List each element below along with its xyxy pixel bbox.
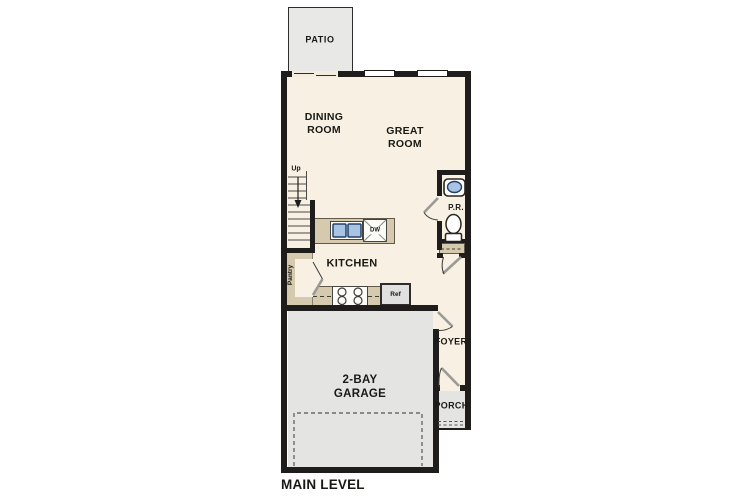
window	[417, 70, 448, 77]
dining-room-label: DINING ROOM	[305, 111, 344, 137]
wall	[437, 221, 442, 250]
refrigerator-label: Ref	[390, 291, 400, 299]
pantry-label: Pantry	[287, 265, 295, 285]
floor-plan: PATIO DINING ROOM GREAT ROOM KITCHEN Up …	[0, 0, 750, 500]
porch-label: PORCH	[434, 401, 468, 412]
wall	[437, 239, 466, 243]
garage-label: 2-BAY GARAGE	[334, 373, 386, 401]
wall	[437, 253, 443, 258]
powder-room-label: P.R.	[448, 203, 464, 213]
garage-door-line	[293, 470, 424, 472]
wall	[437, 170, 465, 175]
pantry-door-notch	[295, 259, 313, 297]
wall	[433, 385, 440, 391]
patio-label: PATIO	[305, 35, 334, 46]
wall	[465, 71, 471, 430]
dishwasher-label: DW	[369, 227, 381, 234]
stove	[332, 286, 368, 306]
kitchen-label: KITCHEN	[327, 257, 378, 270]
island-sink-unit	[330, 221, 363, 240]
level-label: MAIN LEVEL	[281, 477, 365, 493]
wall	[437, 428, 466, 430]
great-room-label: GREAT ROOM	[386, 125, 423, 151]
wall	[310, 200, 315, 253]
wall	[460, 385, 466, 391]
sliding-door-panel	[294, 73, 314, 75]
up-label: Up	[291, 166, 300, 175]
window	[364, 70, 395, 77]
sliding-door-panel	[316, 75, 336, 77]
wall	[287, 305, 438, 311]
foyer-label: FOYER	[435, 337, 468, 348]
wall	[459, 253, 466, 258]
wall	[281, 248, 315, 253]
